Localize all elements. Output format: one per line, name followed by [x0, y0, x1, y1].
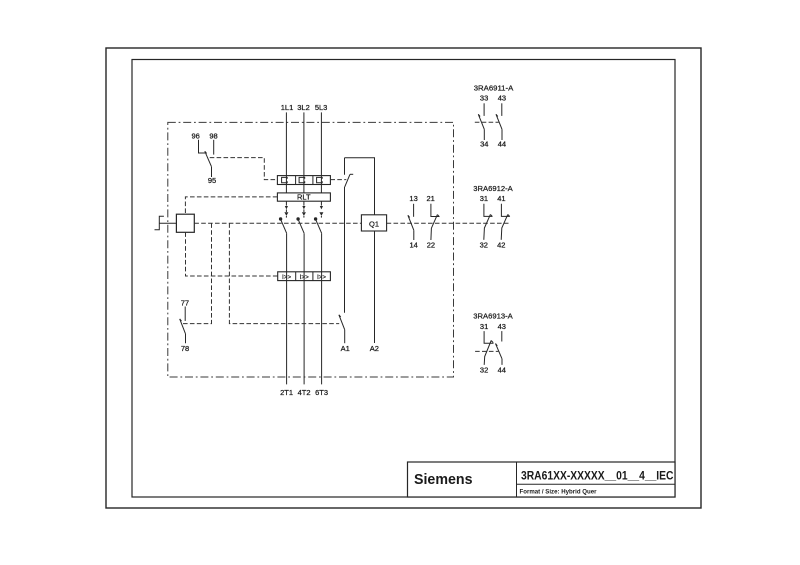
svg-text:31: 31: [480, 322, 488, 331]
svg-text:42: 42: [497, 241, 505, 250]
svg-text:31: 31: [480, 194, 488, 203]
svg-text:44: 44: [498, 366, 506, 375]
svg-text:1L1: 1L1: [281, 103, 294, 112]
svg-text:98: 98: [209, 131, 217, 140]
svg-text:43: 43: [498, 322, 506, 331]
svg-text:2T1: 2T1: [280, 388, 293, 397]
svg-text:32: 32: [480, 241, 488, 250]
svg-text:95: 95: [208, 176, 216, 185]
svg-text:3RA6911-A: 3RA6911-A: [474, 83, 514, 92]
svg-text:22: 22: [427, 241, 435, 250]
svg-text:Q1: Q1: [369, 219, 379, 228]
svg-text:96: 96: [192, 131, 200, 140]
svg-text:13: 13: [409, 194, 417, 203]
svg-text:33: 33: [480, 94, 488, 103]
svg-text:43: 43: [498, 94, 506, 103]
svg-text:21: 21: [427, 194, 435, 203]
svg-text:77: 77: [181, 298, 189, 307]
svg-text:3RA6912-A: 3RA6912-A: [473, 184, 513, 193]
svg-text:A1: A1: [341, 344, 350, 353]
svg-text:RLT: RLT: [297, 193, 311, 202]
svg-text:3RA61XX-XXXXX__01__4__IEC: 3RA61XX-XXXXX__01__4__IEC: [521, 469, 674, 483]
svg-text:34: 34: [480, 140, 488, 149]
svg-text:Siemens: Siemens: [414, 472, 473, 488]
svg-text:41: 41: [497, 194, 505, 203]
svg-text:14: 14: [410, 241, 418, 250]
svg-text:32: 32: [480, 366, 488, 375]
svg-text:Format / Size: Hybrid Quer: Format / Size: Hybrid Quer: [520, 489, 597, 496]
svg-text:4T2: 4T2: [298, 388, 311, 397]
svg-text:44: 44: [498, 140, 506, 149]
svg-text:3RA6913-A: 3RA6913-A: [473, 311, 513, 320]
svg-text:6T3: 6T3: [315, 388, 328, 397]
svg-text:78: 78: [181, 344, 189, 353]
svg-text:3L2: 3L2: [297, 103, 310, 112]
svg-text:5L3: 5L3: [315, 103, 328, 112]
svg-text:A2: A2: [370, 344, 379, 353]
